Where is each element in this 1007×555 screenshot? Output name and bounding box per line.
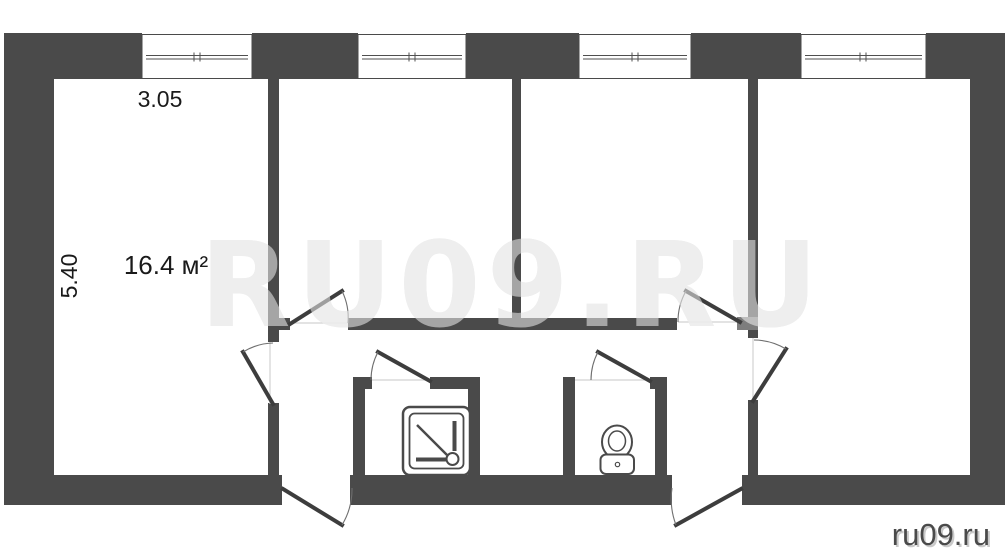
- site-watermark-label: ru09.ru ru09.ru: [892, 517, 992, 554]
- dimension-width-label: 3.05: [138, 86, 183, 112]
- window-icon: [358, 35, 466, 79]
- toilet-icon: [601, 426, 635, 475]
- floor-plan-canvas: RU09.RU: [0, 0, 1007, 555]
- door-swing-icon-exterior-right: [671, 488, 741, 525]
- door-swing-icon-shower-room: [371, 352, 430, 381]
- door-swing-icon-exterior-left: [283, 488, 352, 525]
- window-icon: [142, 35, 252, 79]
- door-swing-icon-toilet-room: [591, 352, 650, 381]
- room-area-label: 16.4 м²: [124, 250, 209, 280]
- window-icon: [801, 35, 926, 79]
- window-icon: [579, 35, 691, 79]
- dimension-depth-label: 5.40: [56, 254, 82, 299]
- dimension-labels: 3.05 5.40 16.4 м²: [56, 86, 209, 298]
- shower-tray-icon: [403, 407, 470, 475]
- site-label: ru09.ru: [892, 517, 990, 552]
- watermark-text-over: RU09.RU: [200, 216, 824, 354]
- floor-plan-page: RU09.RU: [0, 0, 1007, 555]
